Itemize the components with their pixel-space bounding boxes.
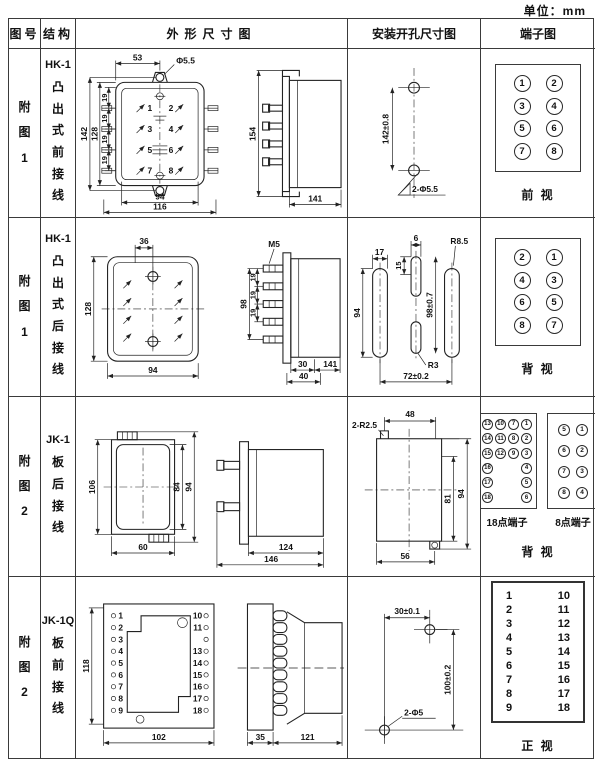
dim-label: 98±0.7 (424, 292, 434, 318)
dim-label: 121 (300, 731, 314, 741)
dim-label: R8.5 (450, 236, 468, 246)
terminal-pin: 2 (546, 75, 563, 92)
dim-label: 94 (351, 308, 361, 318)
terminal-number: 7 (147, 166, 152, 176)
terminal-pin: 3 (514, 98, 531, 115)
dim-label: 98 (238, 299, 248, 309)
row1-outline-cell: 1 2 3 4 5 6 7 8 53 Φ5.5 142 (76, 49, 348, 218)
model-label: HK-1 (45, 59, 71, 71)
row2-fig-no: 附图1 (9, 218, 41, 397)
structure-label: 凸出式前接线 (51, 77, 66, 207)
row2-install-cell: 17 6 15 94 98±0.7 R8.5 R3 72±0.2 (348, 218, 481, 397)
terminal-diagram-8pt: 2 1 4 3 6 5 8 7 (495, 238, 581, 346)
terminal-pin: 14 (482, 433, 493, 444)
row4-structure: JK-1Q 板前接线 (41, 577, 76, 758)
dim-label: 53 (132, 53, 142, 63)
row2-outline-cell: 36 128 94 (76, 218, 348, 397)
model-label: HK-1 (45, 233, 71, 245)
rear-view: 36 128 94 (82, 236, 203, 379)
dim-label: 2-Φ5.5 (412, 184, 438, 194)
terminal-pin: 16 (558, 674, 570, 686)
terminal-pin: 8 (508, 433, 519, 444)
install-drawing-hk1-rear: 17 6 15 94 98±0.7 R8.5 R3 72±0.2 (349, 219, 480, 395)
terminal-pin: 12 (495, 448, 506, 459)
dim-label: 2-R2.5 (351, 419, 376, 429)
terminal-number: 6 (168, 145, 173, 155)
outline-drawing-jk1: 106 84 94 60 (78, 401, 346, 573)
dim-label: 6 (413, 233, 418, 243)
terminal-pin: 1 (576, 424, 588, 436)
terminal-pin: 10 (558, 590, 570, 602)
col-header-fig-no: 图号 (9, 19, 41, 49)
dim-label: 15 (394, 262, 403, 270)
row4-fig-no: 附图2 (9, 577, 41, 758)
terminal-pin: 2 (506, 604, 512, 616)
terminal-pin: 18 (558, 702, 570, 714)
terminal-pin: 1 (546, 249, 563, 266)
dim-label: 17 (374, 247, 384, 257)
dim-label: 146 (264, 553, 278, 563)
terminal-pin: 15 (482, 448, 493, 459)
terminal-number: 15 (192, 669, 202, 679)
front-view: 1 2 3 4 5 6 7 8 9 10 11 13 14 (80, 603, 213, 745)
model-label: JK-1 (46, 434, 70, 446)
terminal-pin: 7 (546, 317, 563, 334)
view-caption: 前 视 (521, 186, 554, 203)
terminal-pin: 15 (558, 660, 570, 672)
terminal-number: 18 (192, 705, 202, 715)
dim-label: 128 (82, 302, 92, 316)
row4-terminal-cell: 1 2 3 4 5 6 7 8 9 10 11 12 13 14 15 (481, 577, 595, 758)
terminal-pin: 3 (521, 448, 532, 459)
view-caption: 背 视 (521, 360, 554, 377)
terminal-pin: 9 (508, 448, 519, 459)
structure-label: 板后接线 (51, 452, 66, 538)
terminal-pin: 7 (506, 674, 512, 686)
terminal-studs (216, 460, 239, 511)
terminal-pin: 6 (506, 660, 512, 672)
terminal-pin: 5 (558, 424, 570, 436)
model-label: JK-1Q (42, 615, 74, 627)
row2-terminal-cell: 2 1 4 3 6 5 8 7 背 视 (481, 218, 595, 397)
terminal-number: 9 (118, 705, 123, 715)
terminal-pin: 5 (506, 646, 512, 658)
terminal-pin: 13 (482, 419, 493, 430)
dim-label: 154 (247, 127, 257, 141)
install-drawing-jk1: 2-R2.5 48 81 94 56 (349, 401, 480, 573)
dim-label: 141 (323, 359, 337, 369)
terminal-pin: 4 (514, 272, 531, 289)
terminal-pin: 8 (514, 317, 531, 334)
terminal-number: 5 (118, 658, 123, 668)
terminal-number: 8 (168, 166, 173, 176)
view-caption: 正 视 (521, 737, 554, 754)
dim-label: M5 (268, 239, 280, 249)
terminal-left-column: 1 2 3 4 5 6 7 8 9 (506, 590, 512, 714)
row3-terminal-cell: 131071 141182 151293 164 175 186 51 62 7… (481, 397, 595, 577)
row3-structure: JK-1 板后接线 (41, 397, 76, 577)
terminal-number: 8 (118, 693, 123, 703)
dim-label: 30 (297, 359, 307, 369)
side-view: 124 146 (216, 441, 322, 567)
terminal-pin: 7 (508, 419, 519, 430)
row3-install-cell: 2-R2.5 48 81 94 56 (348, 397, 481, 577)
outline-drawing-jk1q: 1 2 3 4 5 6 7 8 9 10 11 13 14 (78, 581, 346, 755)
dim-label: 48 (405, 409, 415, 419)
install-drawing-jk1q: 30±0.1 2-Φ5 100±0.2 (349, 580, 480, 756)
terminal-pin: 8 (558, 487, 570, 499)
terminal-number: 5 (147, 145, 152, 155)
terminal-pin: 13 (558, 632, 570, 644)
terminal-pin: 18 (482, 492, 493, 503)
terminal-pin: 5 (514, 120, 531, 137)
dim-label: 81 (442, 493, 452, 503)
dim-label: 36 (139, 236, 149, 246)
terminal-pin: 8 (506, 688, 512, 700)
terminal-pin: 7 (558, 466, 570, 478)
terminal-number: 11 (193, 622, 202, 632)
dim-label: 84 (171, 482, 181, 492)
col-header-install-dims: 安装开孔尺寸图 (348, 19, 481, 49)
dim-label: 19 (248, 273, 257, 281)
dim-label: 94 (456, 488, 466, 498)
dim-label: 56 (400, 550, 410, 560)
dim-label: 19 (99, 114, 108, 122)
dim-label: 94 (148, 365, 158, 375)
dim-label: Φ5.5 (176, 56, 195, 66)
dim-label: 19 (99, 156, 108, 164)
fig-no-label: 附图1 (17, 95, 32, 171)
row2-structure: HK-1 凸出式后接线 (41, 218, 76, 397)
fig-no-label: 附图1 (17, 269, 32, 345)
terminal-18pt-label: 18点端子 (481, 514, 537, 529)
terminal-diagram-8pt: 1 2 3 4 5 6 7 8 (495, 64, 581, 172)
spec-table: 图号 结构 外形尺寸图 安装开孔尺寸图 端子图 附图1 HK-1 凸出式前接线 (8, 18, 594, 759)
side-view: 35 121 (237, 603, 343, 745)
dim-label: 94 (183, 482, 193, 492)
dim-label: 72±0.2 (403, 371, 429, 381)
terminal-pin: 3 (576, 466, 588, 478)
terminal-pin: 1 (514, 75, 531, 92)
dim-label: 60 (138, 542, 148, 552)
row4-outline-cell: 1 2 3 4 5 6 7 8 9 10 11 13 14 (76, 577, 348, 758)
terminal-diagram-labels: 18点端子 8点端子 (481, 514, 595, 529)
front-view: 1 2 3 4 5 6 7 8 53 Φ5.5 142 (78, 53, 217, 215)
dim-label: 128 (89, 127, 99, 141)
row3-fig-no: 附图2 (9, 397, 41, 577)
left-terminals (111, 613, 115, 712)
terminal-pin: 4 (506, 632, 512, 644)
side-view: M5 98 19 19 19 30 40 (238, 239, 340, 385)
fig-no-label: 附图2 (17, 630, 32, 706)
dim-label: 106 (86, 479, 96, 493)
dim-label: 102 (151, 731, 165, 741)
terminal-number: 3 (147, 124, 152, 134)
dim-label: 118 (80, 658, 90, 672)
terminal-pin: 3 (506, 618, 512, 630)
right-terminals (203, 613, 207, 712)
terminal-pin: 7 (514, 143, 531, 160)
terminal-number: 4 (118, 646, 123, 656)
install-drawing-hk1-front: 142±0.8 2-Φ5.5 (349, 49, 480, 218)
terminal-number: 2 (168, 103, 173, 113)
dim-label: 2-Φ5 (404, 707, 423, 717)
col-header-structure: 结构 (41, 19, 76, 49)
dim-label: 142 (78, 127, 88, 141)
structure-label: 凸出式后接线 (51, 251, 66, 381)
terminal-number: 17 (192, 693, 202, 703)
terminal-diagrams: 131071 141182 151293 164 175 186 51 62 7… (481, 413, 595, 509)
terminal-number: 3 (118, 634, 123, 644)
terminal-pin: 2 (576, 445, 588, 457)
terminal-pin: 6 (558, 445, 570, 457)
outline-drawing-hk1-front: 1 2 3 4 5 6 7 8 53 Φ5.5 142 (78, 50, 346, 216)
row1-terminal-cell: 1 2 3 4 5 6 7 8 前 视 (481, 49, 595, 218)
terminal-pin: 8 (546, 143, 563, 160)
front-view: 106 84 94 60 (86, 431, 197, 555)
terminal-pin: 3 (546, 272, 563, 289)
side-view: 154 141 (247, 70, 340, 207)
row1-structure: HK-1 凸出式前接线 (41, 49, 76, 218)
terminal-number: 7 (118, 681, 123, 691)
terminal-pin: 2 (521, 433, 532, 444)
dim-label: 19 (248, 309, 257, 317)
dim-label: 19 (99, 135, 108, 143)
terminal-pin: 10 (495, 419, 506, 430)
terminal-pin: 17 (482, 477, 493, 488)
terminal-pin: 5 (546, 294, 563, 311)
terminal-pin: 9 (506, 702, 512, 714)
terminal-pin: 6 (521, 492, 532, 503)
terminal-pin: 11 (495, 433, 506, 444)
terminal-pin: 5 (521, 477, 532, 488)
col-header-terminal-diagram: 端子图 (481, 19, 595, 49)
terminal-pin: 16 (482, 463, 493, 474)
terminal-number: 10 (192, 610, 202, 620)
unit-label: 单位：mm (524, 2, 586, 19)
terminal-studs (263, 265, 283, 343)
terminal-number: 14 (192, 658, 202, 668)
dim-label: R3 (427, 360, 438, 370)
terminal-8pt-label: 8点端子 (547, 514, 595, 529)
terminal-pin: 1 (506, 590, 512, 602)
terminal-diagram-8pt: 51 62 73 84 (547, 413, 595, 509)
terminal-pin: 14 (558, 646, 570, 658)
outline-drawing-hk1-rear: 36 128 94 (78, 222, 346, 392)
terminal-number: 2 (118, 622, 123, 632)
terminal-number: 13 (192, 646, 202, 656)
row3-outline-cell: 106 84 94 60 (76, 397, 348, 577)
dim-label: 94 (155, 192, 165, 202)
terminal-number: 1 (118, 610, 123, 620)
structure-label: 板前接线 (51, 633, 66, 719)
terminal-right-column: 10 11 12 13 14 15 16 17 18 (558, 590, 570, 714)
terminal-diagram-18pt-block: 1 2 3 4 5 6 7 8 9 10 11 12 13 14 15 (491, 581, 585, 723)
terminal-diagram-18pt: 131071 141182 151293 164 175 186 (481, 413, 537, 509)
terminal-pin: 1 (521, 419, 532, 430)
dim-label: 19 (99, 94, 108, 102)
terminal-pin: 4 (521, 463, 532, 474)
document-page: 单位：mm 图号 结构 外形尺寸图 安装开孔尺寸图 端子图 附图1 HK-1 凸… (0, 0, 602, 767)
dim-label: 35 (255, 731, 265, 741)
row1-install-cell: 142±0.8 2-Φ5.5 (348, 49, 481, 218)
col-header-outline-dims: 外形尺寸图 (76, 19, 348, 49)
dim-label: 116 (153, 201, 167, 211)
dim-label: 142±0.8 (380, 114, 390, 145)
dim-label: 100±0.2 (442, 664, 452, 695)
dim-label: 30±0.1 (394, 605, 420, 615)
terminal-number: 16 (192, 681, 202, 691)
terminal-pin: 11 (558, 604, 570, 616)
terminal-pin: 4 (546, 98, 563, 115)
terminal-pin: 17 (558, 688, 570, 700)
fig-no-label: 附图2 (17, 449, 32, 525)
row1-fig-no: 附图1 (9, 49, 41, 218)
terminal-pin: 2 (514, 249, 531, 266)
view-caption: 背 视 (521, 543, 554, 560)
terminal-pin: 4 (576, 487, 588, 499)
terminal-studs (262, 104, 282, 166)
terminal-number: 1 (147, 103, 152, 113)
terminal-pin: 6 (546, 120, 563, 137)
row4-install-cell: 30±0.1 2-Φ5 100±0.2 (348, 577, 481, 758)
dim-label: 19 (248, 291, 257, 299)
dim-label: 141 (308, 193, 322, 203)
dim-label: 124 (278, 542, 292, 552)
terminal-pin: 6 (514, 294, 531, 311)
terminal-beads (273, 610, 287, 714)
terminal-pin: 12 (558, 618, 570, 630)
terminal-number: 6 (118, 669, 123, 679)
dim-label: 40 (298, 371, 308, 381)
terminal-number: 4 (168, 124, 173, 134)
